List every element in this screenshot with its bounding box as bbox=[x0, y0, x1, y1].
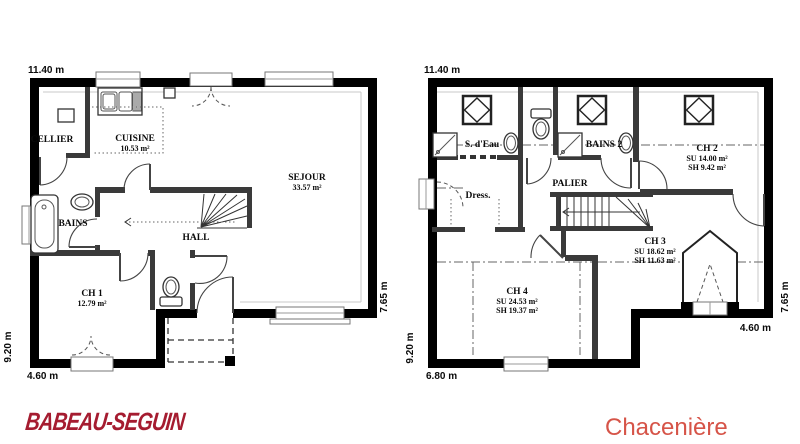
room-su-ch3: SU 18.62 m² bbox=[634, 247, 676, 256]
room-label-bains2: BAINS 2 bbox=[586, 140, 622, 150]
uf-dim-bottom-right: 4.60 m bbox=[740, 323, 771, 334]
roof-window-1 bbox=[463, 96, 491, 124]
gf-dim-right: 7.65 m bbox=[379, 281, 390, 312]
porch-outline bbox=[168, 318, 235, 366]
sdeau-shower-fixture bbox=[433, 133, 457, 157]
uf-dim-left: 9.20 m bbox=[405, 332, 416, 363]
gf-dim-top: 11.40 m bbox=[28, 65, 64, 76]
model-name: Chacenière bbox=[605, 414, 728, 442]
sejour-bay-window bbox=[270, 307, 350, 324]
room-area-cuisine: 10.53 m² bbox=[120, 144, 150, 153]
bains-washbasin-fixture bbox=[71, 194, 93, 210]
ch4-window bbox=[504, 357, 548, 371]
gf-dim-left: 9.20 m bbox=[3, 331, 14, 362]
sejour-top-window bbox=[265, 72, 333, 86]
bains2-door-swing bbox=[601, 158, 631, 188]
room-label-bains: BAINS bbox=[58, 219, 87, 229]
sdeau-washbasin-fixture bbox=[504, 133, 518, 153]
floor-plans-drawing: 11.40 m 9.20 m 4.60 m 7.65 m CELLIER CUI… bbox=[0, 0, 800, 400]
room-label-cellier: CELLIER bbox=[31, 135, 74, 145]
roof-window-2 bbox=[578, 96, 606, 124]
dress-window bbox=[419, 179, 463, 209]
ground-floor-staircase bbox=[125, 194, 247, 228]
room-sh-ch4: SH 19.37 m² bbox=[496, 306, 538, 315]
ground-floor-plan: 11.40 m 9.20 m 4.60 m 7.65 m CELLIER CUI… bbox=[3, 65, 390, 382]
kitchen-window bbox=[96, 72, 140, 87]
room-label-hall: HALL bbox=[183, 233, 210, 243]
room-label-palier: PALIER bbox=[552, 179, 587, 189]
upper-floor-fixtures bbox=[433, 109, 650, 228]
room-su-ch4: SU 24.53 m² bbox=[496, 297, 538, 306]
ch3-door-swing bbox=[733, 194, 764, 226]
kitchen-sink-fixture bbox=[98, 88, 175, 115]
room-area-ch1: 12.79 m² bbox=[77, 299, 107, 308]
upper-floor-plan: 11.40 m 9.20 m 6.80 m 4.60 m 7.65 m S. d… bbox=[405, 65, 791, 382]
uf-dim-bottom-left: 6.80 m bbox=[426, 371, 457, 382]
ch1-french-window bbox=[71, 336, 113, 371]
bathtub-fixture bbox=[31, 195, 58, 253]
dress-closet-outline bbox=[451, 199, 499, 225]
upper-floor-windows bbox=[419, 179, 739, 371]
room-label-sejour: SEJOUR bbox=[288, 173, 326, 183]
room-label-dress: Dress. bbox=[466, 191, 491, 201]
kitchen-door-swing bbox=[124, 164, 150, 190]
bains2-shower-fixture bbox=[558, 133, 582, 157]
brand-logo: BABEAU-SEGUIN bbox=[24, 408, 186, 437]
room-label-ch1: CH 1 bbox=[81, 289, 103, 299]
room-label-ch4: CH 4 bbox=[506, 287, 528, 297]
wc2-door-swing bbox=[527, 158, 551, 184]
wc2-toilet-fixture bbox=[531, 109, 551, 139]
upper-floor-staircase bbox=[560, 197, 650, 228]
cellier-door-swing bbox=[40, 157, 67, 185]
room-sh-ch2: SH 9.42 m² bbox=[688, 163, 726, 172]
room-label-ch2: CH 2 bbox=[696, 144, 718, 154]
wc-toilet-fixture bbox=[160, 277, 182, 306]
uf-dim-right: 7.65 m bbox=[780, 281, 791, 312]
roof-windows bbox=[463, 96, 713, 124]
room-label-ch3: CH 3 bbox=[644, 237, 666, 247]
wc-door-swing bbox=[195, 256, 227, 283]
roof-window-3 bbox=[685, 96, 713, 124]
dormer bbox=[681, 231, 739, 316]
room-label-sdeau: S. d'Eau bbox=[465, 140, 500, 150]
french-door-top bbox=[190, 73, 232, 106]
upper-floor-interior-walls bbox=[432, 87, 733, 359]
entry-door-swing bbox=[197, 277, 233, 313]
ch1-door-swing bbox=[120, 253, 148, 281]
floor-plan-page: 11.40 m 9.20 m 4.60 m 7.65 m CELLIER CUI… bbox=[0, 0, 800, 444]
room-sh-ch3: SH 11.63 m² bbox=[634, 256, 676, 265]
room-area-sejour: 33.57 m² bbox=[292, 183, 322, 192]
room-label-cuisine: CUISINE bbox=[115, 134, 155, 144]
gf-dim-bottom: 4.60 m bbox=[27, 371, 58, 382]
uf-dim-top: 11.40 m bbox=[424, 65, 460, 76]
cellier-cupboard bbox=[58, 109, 74, 122]
ch4-door-swing bbox=[531, 235, 563, 258]
room-su-ch2: SU 14.00 m² bbox=[686, 154, 728, 163]
ch2-door-swing bbox=[639, 161, 667, 189]
